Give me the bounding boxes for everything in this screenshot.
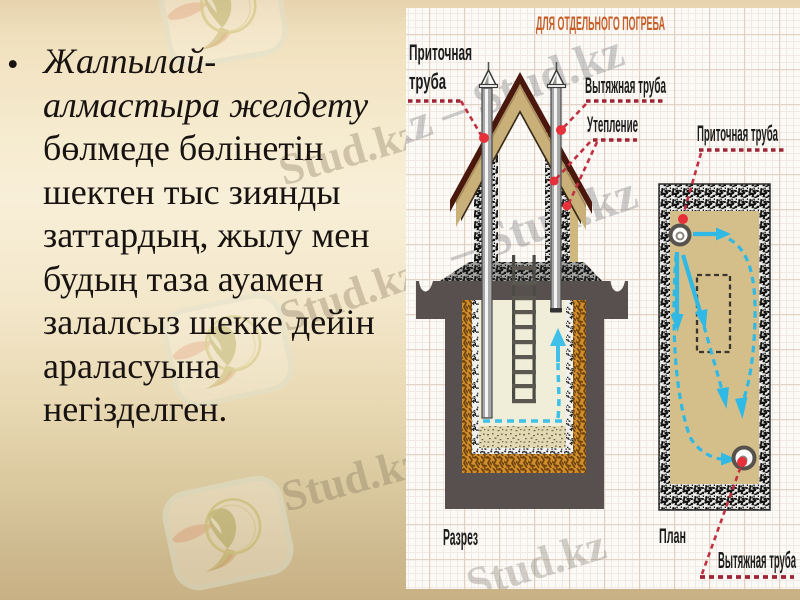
- svg-text:Приточная: Приточная: [409, 40, 472, 65]
- svg-text:План: План: [659, 525, 686, 548]
- svg-text:Утепление: Утепление: [587, 112, 638, 137]
- svg-text:Приточная труба: Приточная труба: [697, 121, 778, 146]
- svg-text:Вытяжная труба: Вытяжная труба: [585, 73, 666, 98]
- svg-text:труба: труба: [409, 69, 446, 94]
- svg-text:Вытяжная труба: Вытяжная труба: [718, 547, 796, 573]
- svg-text:Разрез: Разрез: [443, 524, 478, 550]
